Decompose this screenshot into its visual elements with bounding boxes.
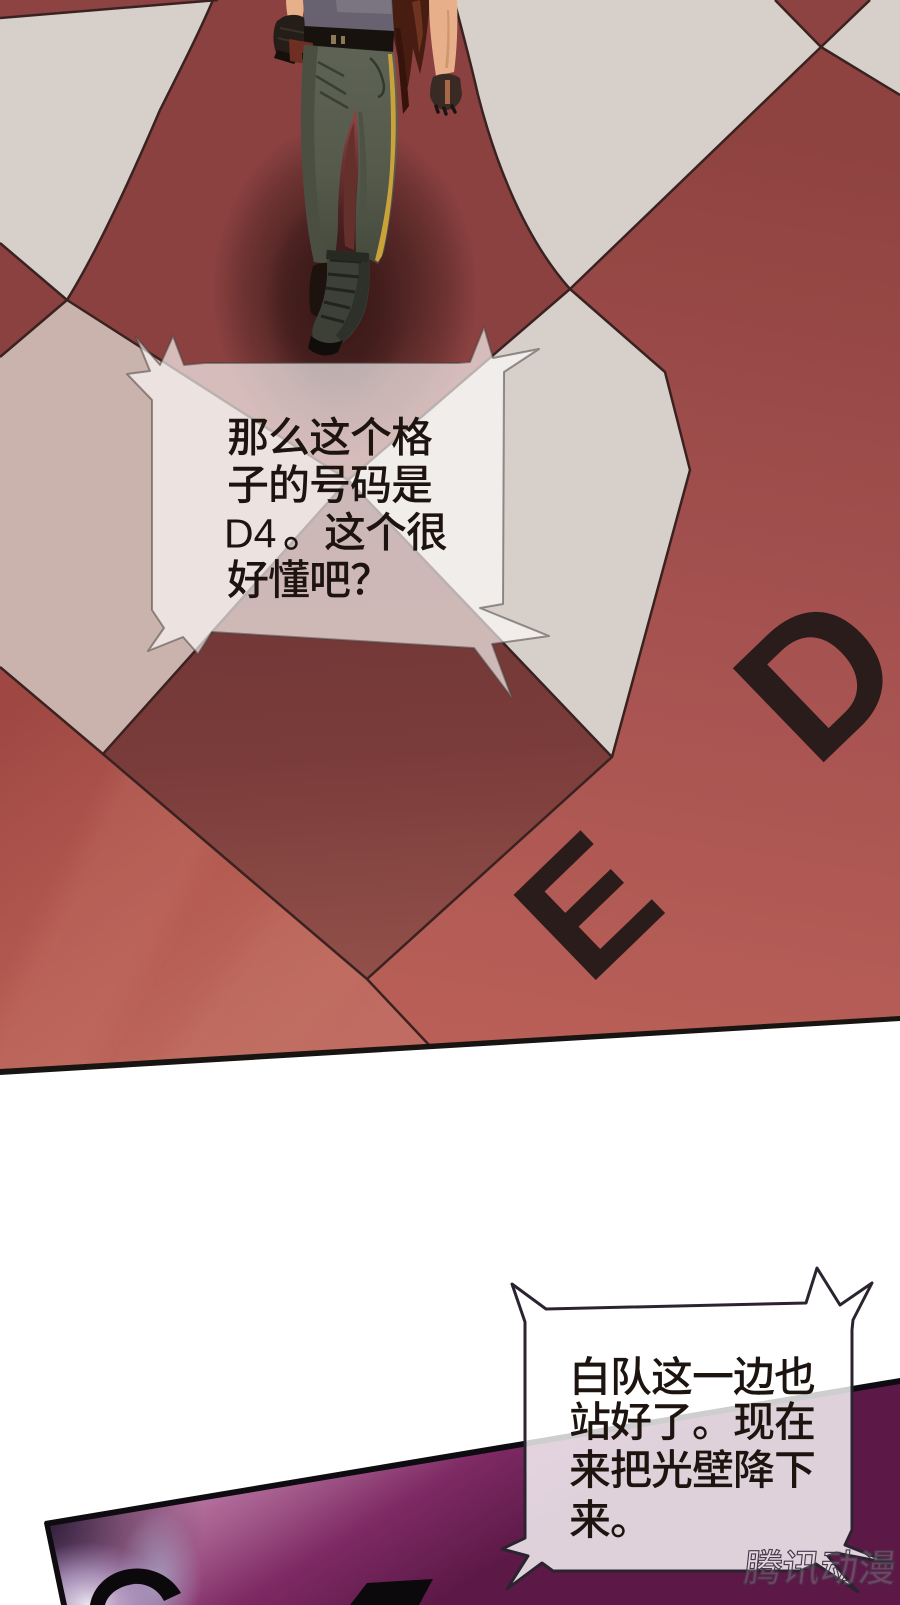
svg-text:D4: D4 [224, 511, 276, 557]
